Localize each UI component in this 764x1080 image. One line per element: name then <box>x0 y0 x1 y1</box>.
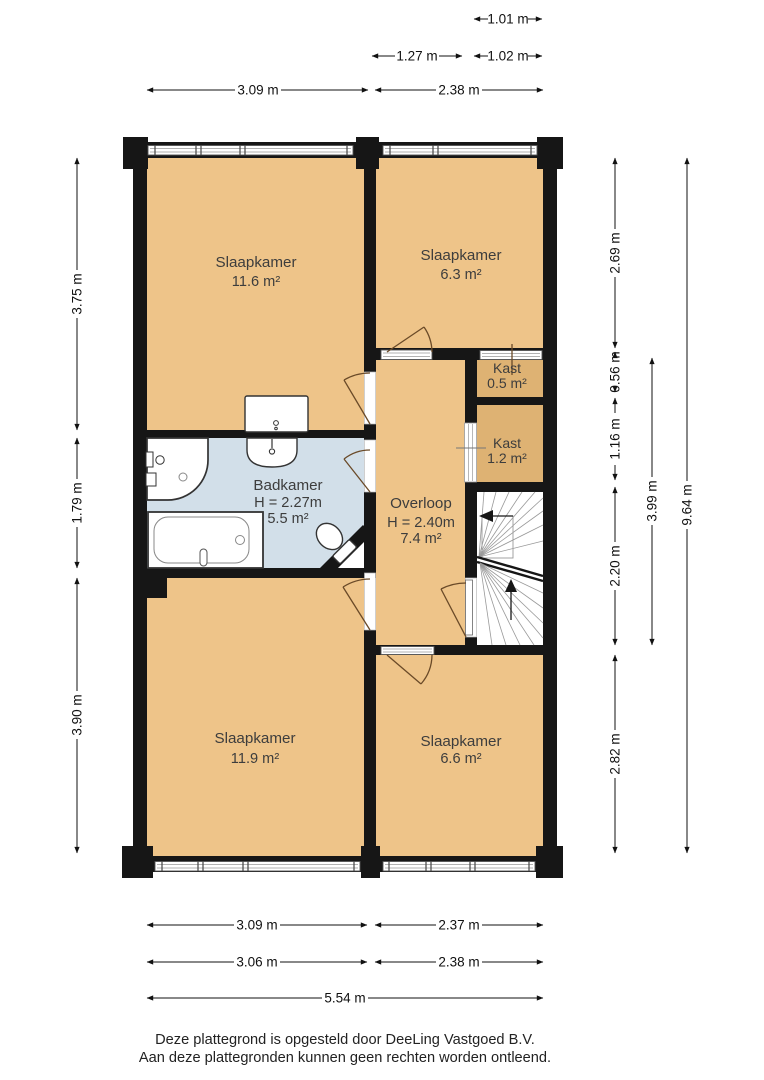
dim-right-3-99: 3.99 m <box>645 480 660 521</box>
room-slaapkamer-11-6 <box>147 158 364 430</box>
dim-bottom-5-54: 5.54 m <box>324 991 365 1006</box>
label-badkamer-area: 5.5 m² <box>267 511 308 527</box>
window-bottom-left <box>155 862 360 872</box>
disclaimer-line-2: Aan deze plattegronden kunnen geen recht… <box>0 1049 690 1067</box>
doorway-slaapkamer-11-9 <box>365 573 376 630</box>
label-overloop-area: 7.4 m² <box>400 531 441 547</box>
dim-bottom-2-38: 2.38 m <box>438 955 479 970</box>
label-overloop-height: H = 2.40m <box>387 515 455 531</box>
dim-top-2-38: 2.38 m <box>438 83 479 98</box>
label-slaapkamer-br-name: Slaapkamer <box>420 733 501 750</box>
wall-stub <box>147 578 167 598</box>
label-slaapkamer-bl-name: Slaapkamer <box>214 730 295 747</box>
wall-spine-bottom <box>364 630 376 856</box>
label-slaapkamer-tr-name: Slaapkamer <box>420 247 501 264</box>
pillar-bottom-left <box>122 846 153 878</box>
wall-badkamer-bottom <box>133 568 376 578</box>
wall-kast-left <box>465 348 477 423</box>
stairs-door-leaf <box>466 580 473 635</box>
label-slaapkamer-tl-area: 11.6 m² <box>232 274 281 290</box>
dim-top-1-02: 1.02 m <box>487 49 528 64</box>
dim-left-1-79: 1.79 m <box>70 482 85 523</box>
label-kast-groot-name: Kast <box>493 435 521 451</box>
room-slaapkamer-11-9 <box>147 578 364 856</box>
dim-right-2-82: 2.82 m <box>608 733 623 774</box>
window-top-left <box>148 146 353 156</box>
dim-right-0-56: 0.56 m <box>608 351 623 392</box>
window-bottom-right <box>383 862 535 872</box>
wall-kast-divider <box>465 397 557 405</box>
label-badkamer-name: Badkamer <box>253 477 322 494</box>
pillar-top-right <box>537 137 563 169</box>
floorplan-drawing: 1.01 m 1.27 m 1.02 m 3.09 m 2.38 m 3.09 … <box>0 0 764 1080</box>
label-kast-klein-area: 0.5 m² <box>487 375 527 391</box>
label-kast-groot-area: 1.2 m² <box>487 450 527 466</box>
label-badkamer-height: H = 2.27m <box>254 495 322 511</box>
dim-right-1-16: 1.16 m <box>608 418 623 459</box>
label-slaapkamer-tr-area: 6.3 m² <box>440 267 481 283</box>
wall-spine-top <box>364 158 376 352</box>
dim-right-2-20: 2.20 m <box>608 545 623 586</box>
washbasin-cabinet <box>245 396 308 432</box>
sink <box>247 438 297 467</box>
dim-bottom-3-06: 3.06 m <box>236 955 277 970</box>
window-top-right <box>383 146 537 156</box>
dim-left-3-75: 3.75 m <box>70 273 85 314</box>
label-kast-klein-name: Kast <box>493 360 521 376</box>
doorway-slaapkamer-11-6 <box>365 372 376 424</box>
label-slaapkamer-br-area: 6.6 m² <box>440 751 481 767</box>
dim-top-1-27: 1.27 m <box>396 49 437 64</box>
label-slaapkamer-bl-area: 11.9 m² <box>231 751 280 767</box>
disclaimer: Deze plattegrond is opgesteld door DeeLi… <box>0 1031 690 1067</box>
bathtub <box>148 512 263 568</box>
dim-right-2-69: 2.69 m <box>608 232 623 273</box>
pillar-bottom-right <box>536 846 563 878</box>
dim-left-3-90: 3.90 m <box>70 694 85 735</box>
doorway-badkamer <box>365 440 376 492</box>
disclaimer-line-1: Deze plattegrond is opgesteld door DeeLi… <box>0 1031 690 1049</box>
dim-top-1-01: 1.01 m <box>487 12 528 27</box>
dim-bottom-2-37: 2.37 m <box>438 918 479 933</box>
pillar-top-left <box>123 137 148 169</box>
wall-below-kast <box>465 482 557 492</box>
wall-exterior-right <box>543 142 557 872</box>
wall-exterior-left <box>133 142 147 872</box>
threshold-slaapkamer-6-6 <box>381 647 434 655</box>
dim-top-3-09: 3.09 m <box>237 83 278 98</box>
wall-stairs-left <box>465 492 477 578</box>
dim-bottom-3-09: 3.09 m <box>236 918 277 933</box>
label-overloop-name: Overloop <box>390 495 452 512</box>
wall-stairs-left-stub <box>465 637 477 645</box>
floorplan-page: 1.01 m 1.27 m 1.02 m 3.09 m 2.38 m 3.09 … <box>0 0 764 1080</box>
dim-right-9-64: 9.64 m <box>680 484 695 525</box>
label-slaapkamer-tl-name: Slaapkamer <box>215 254 296 271</box>
